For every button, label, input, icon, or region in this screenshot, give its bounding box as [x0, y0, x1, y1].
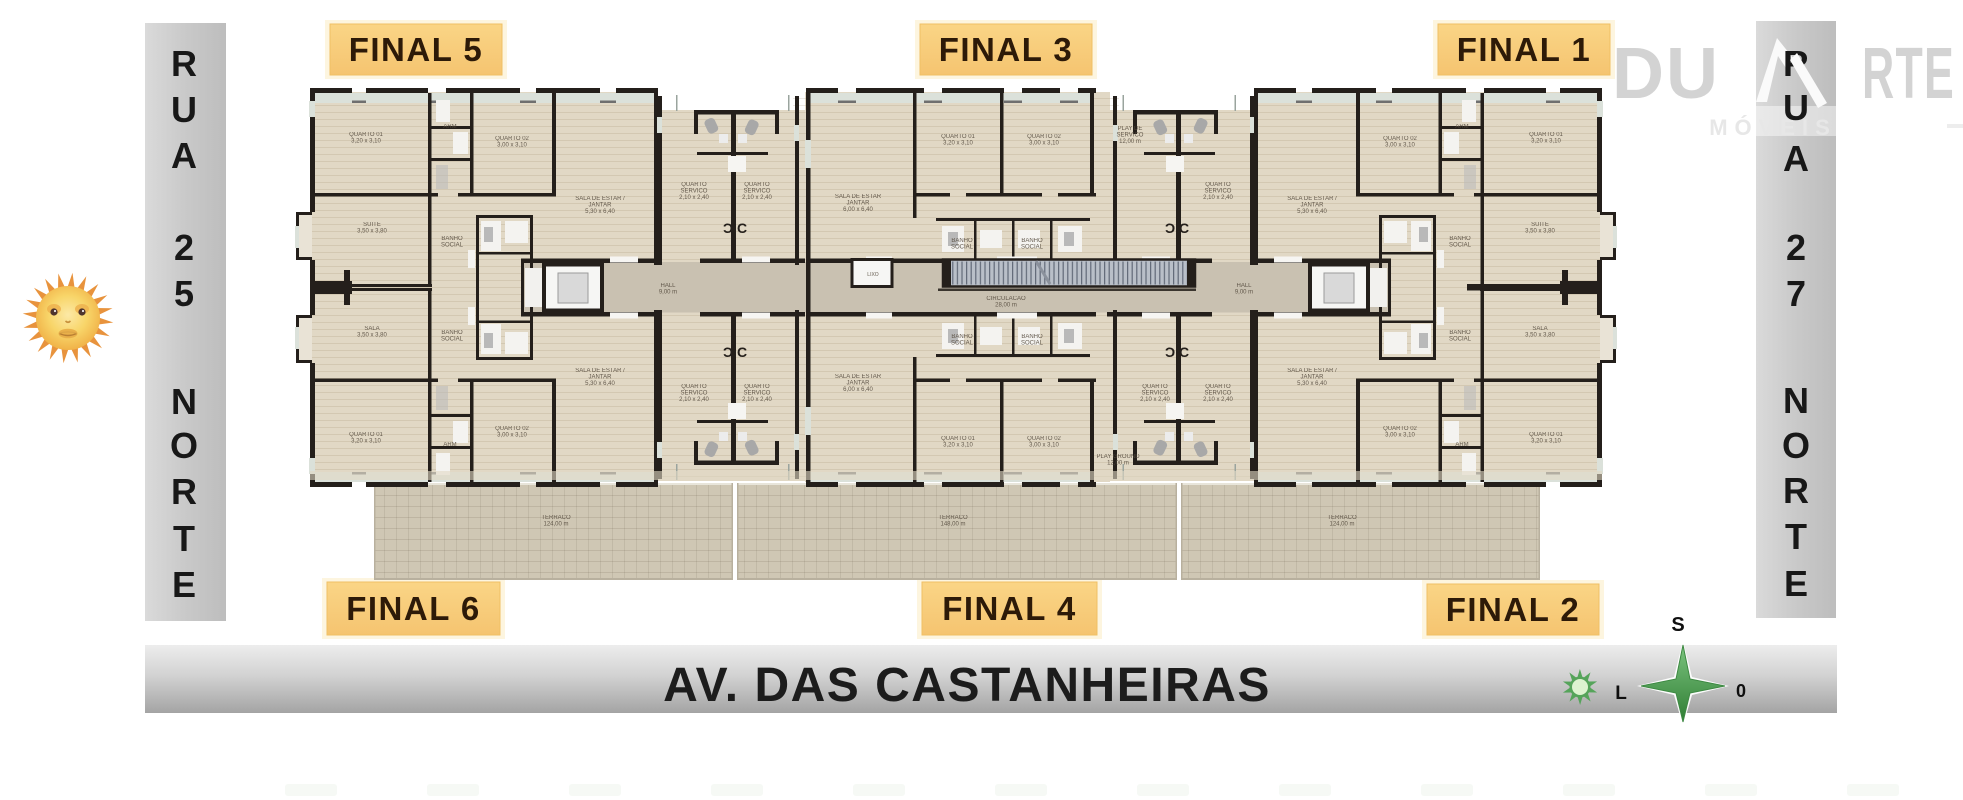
svg-text:L: L	[1615, 683, 1627, 704]
svg-text:U: U	[1783, 87, 1809, 128]
svg-text:ARM: ARM	[1455, 124, 1468, 130]
svg-text:QUARTOSERVICO2,10 x 2,40: QUARTOSERVICO2,10 x 2,40	[679, 384, 709, 403]
svg-text:T: T	[1785, 516, 1807, 557]
svg-text:BANHOSOCIAL: BANHOSOCIAL	[1021, 334, 1044, 347]
svg-text:AV. DAS CASTANHEIRAS: AV. DAS CASTANHEIRAS	[663, 659, 1271, 712]
svg-text:QUARTO 023,00 x 3,10: QUARTO 023,00 x 3,10	[1027, 134, 1061, 147]
svg-text:BANHOSOCIAL: BANHOSOCIAL	[1449, 330, 1472, 343]
svg-text:R: R	[171, 471, 197, 512]
svg-text:HALL9,00 m: HALL9,00 m	[659, 283, 677, 296]
svg-text:QUARTO 013,20 x 3,10: QUARTO 013,20 x 3,10	[1529, 432, 1563, 445]
svg-text:Ɔ C: Ɔ C	[723, 344, 747, 360]
svg-text:T: T	[173, 518, 195, 559]
svg-text:QUARTOSERVICO2,10 x 2,40: QUARTOSERVICO2,10 x 2,40	[1140, 384, 1170, 403]
svg-text:O: O	[170, 425, 198, 466]
svg-text:QUARTO 023,00 x 3,10: QUARTO 023,00 x 3,10	[1383, 136, 1417, 149]
svg-text:LIXO: LIXO	[867, 272, 879, 278]
svg-text:QUARTOSERVICO2,10 x 2,40: QUARTOSERVICO2,10 x 2,40	[679, 182, 709, 201]
svg-text:QUARTOSERVICO2,10 x 2,40: QUARTOSERVICO2,10 x 2,40	[742, 384, 772, 403]
svg-text:BANHOSOCIAL: BANHOSOCIAL	[951, 334, 974, 347]
svg-text:ARM: ARM	[443, 124, 456, 130]
svg-text:E: E	[172, 564, 196, 605]
svg-text:5: 5	[174, 273, 194, 314]
svg-text:BANHOSOCIAL: BANHOSOCIAL	[951, 238, 974, 251]
svg-text:U: U	[171, 89, 197, 130]
svg-text:FINAL 6: FINAL 6	[346, 590, 481, 627]
svg-text:QUARTO 013,20 x 3,10: QUARTO 013,20 x 3,10	[349, 432, 383, 445]
svg-text:N: N	[1783, 380, 1809, 421]
svg-text:FINAL 4: FINAL 4	[942, 590, 1077, 627]
svg-text:TERRACO124,00 m: TERRACO124,00 m	[541, 515, 571, 528]
svg-text:TERRACO148,00 m: TERRACO148,00 m	[938, 515, 968, 528]
svg-text:7: 7	[1786, 273, 1806, 314]
svg-text:E: E	[1784, 563, 1808, 604]
svg-text:Ɔ C: Ɔ C	[723, 220, 747, 236]
svg-text:QUARTO 013,20 x 3,10: QUARTO 013,20 x 3,10	[941, 134, 975, 147]
svg-text:BANHOSOCIAL: BANHOSOCIAL	[1449, 236, 1472, 249]
svg-text:MÓVEIS: MÓVEIS	[1709, 115, 1837, 140]
svg-text:QUARTO 023,00 x 3,10: QUARTO 023,00 x 3,10	[1027, 436, 1061, 449]
svg-text:TERRACO124,00 m: TERRACO124,00 m	[1327, 515, 1357, 528]
svg-text:QUARTOSERVICO2,10 x 2,40: QUARTOSERVICO2,10 x 2,40	[1203, 182, 1233, 201]
svg-text:O: O	[1782, 425, 1810, 466]
svg-text:BANHOSOCIAL: BANHOSOCIAL	[1021, 238, 1044, 251]
svg-text:FINAL 3: FINAL 3	[939, 31, 1074, 68]
svg-text:S: S	[1671, 614, 1684, 636]
svg-text:QUARTO 023,00 x 3,10: QUARTO 023,00 x 3,10	[495, 136, 529, 149]
svg-text:ARM: ARM	[443, 442, 456, 448]
svg-text:ARM: ARM	[1455, 442, 1468, 448]
svg-text:BANHOSOCIAL: BANHOSOCIAL	[441, 330, 464, 343]
svg-text:FINAL 1: FINAL 1	[1457, 31, 1592, 68]
svg-text:QUARTOSERVICO2,10 x 2,40: QUARTOSERVICO2,10 x 2,40	[1203, 384, 1233, 403]
svg-text:A: A	[1783, 138, 1809, 179]
svg-text:Ɔ C: Ɔ C	[1165, 220, 1189, 236]
svg-text:FINAL 5: FINAL 5	[349, 31, 484, 68]
svg-text:A: A	[171, 135, 197, 176]
svg-text:QUARTO 023,00 x 3,10: QUARTO 023,00 x 3,10	[1383, 426, 1417, 439]
svg-text:N: N	[171, 381, 197, 422]
svg-text:Ɔ C: Ɔ C	[1165, 344, 1189, 360]
svg-text:QUARTO 013,20 x 3,10: QUARTO 013,20 x 3,10	[941, 436, 975, 449]
svg-text:QUARTO 023,00 x 3,10: QUARTO 023,00 x 3,10	[495, 426, 529, 439]
svg-text:R: R	[1783, 470, 1809, 511]
svg-text:RTE: RTE	[1862, 33, 1955, 114]
svg-text:QUARTOSERVICO2,10 x 2,40: QUARTOSERVICO2,10 x 2,40	[742, 182, 772, 201]
svg-text:R: R	[171, 43, 197, 84]
svg-text:DU: DU	[1612, 34, 1720, 114]
svg-text:2: 2	[174, 227, 194, 268]
svg-text:2: 2	[1786, 227, 1806, 268]
svg-text:HALL9,00 m: HALL9,00 m	[1235, 283, 1253, 296]
svg-text:0: 0	[1736, 681, 1746, 701]
svg-text:QUARTO 013,20 x 3,10: QUARTO 013,20 x 3,10	[349, 132, 383, 145]
svg-text:PLAY DESERVICO12,00 m: PLAY DESERVICO12,00 m	[1117, 126, 1144, 145]
svg-text:BANHOSOCIAL: BANHOSOCIAL	[441, 236, 464, 249]
svg-text:QUARTO 013,20 x 3,10: QUARTO 013,20 x 3,10	[1529, 132, 1563, 145]
svg-text:FINAL 2: FINAL 2	[1446, 591, 1581, 628]
